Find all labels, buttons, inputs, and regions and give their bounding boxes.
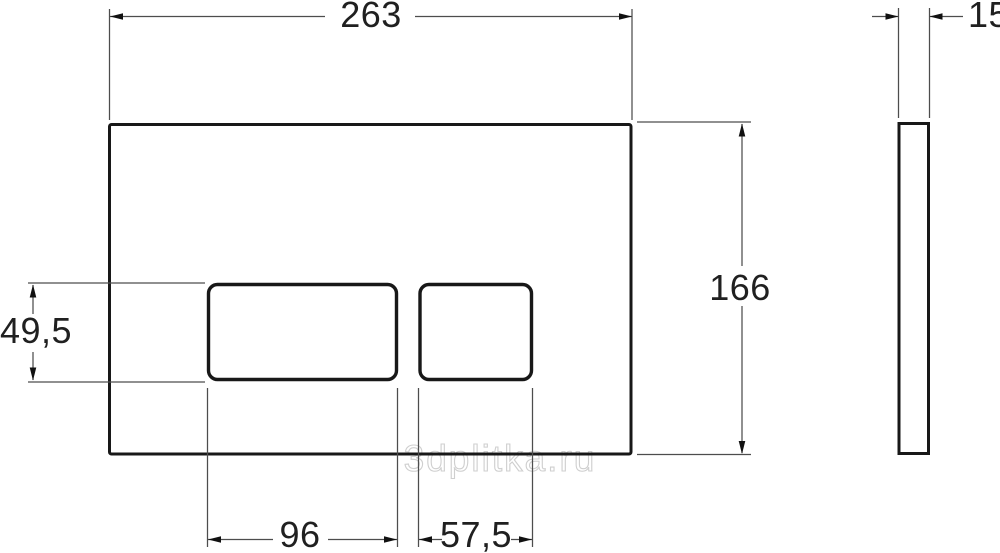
large-flush-button — [209, 285, 397, 380]
arrowhead-left — [886, 13, 899, 20]
arrowhead-left — [419, 536, 432, 543]
flush-plate-front-outline — [110, 125, 632, 455]
arrowhead-right — [519, 536, 532, 543]
technical-drawing-canvas: 3dplitka.ru 263 15 — [0, 0, 1000, 553]
front-view — [110, 125, 632, 455]
dim-side-thickness: 15 — [872, 0, 1000, 118]
dim-side-thickness-lines — [872, 8, 963, 118]
dim-front-height-label: 166 — [709, 267, 771, 308]
dim-side-thickness-label: 15 — [968, 0, 1000, 35]
small-flush-button — [420, 285, 532, 380]
dim-buttons-height-label: 49,5 — [0, 310, 72, 351]
arrowhead-right — [930, 13, 943, 20]
dim-front-width-label: 263 — [340, 0, 402, 35]
dim-large-button-width-label: 96 — [279, 514, 320, 553]
arrowhead-left — [208, 536, 221, 543]
flush-plate-side-outline — [899, 124, 929, 454]
dim-large-button-width: 96 — [208, 388, 398, 553]
arrowhead-up — [739, 124, 746, 137]
dim-buttons-height: 49,5 — [0, 283, 205, 382]
arrowhead-left — [110, 13, 123, 20]
arrowhead-right — [619, 13, 632, 20]
dim-small-button-width-label: 57,5 — [440, 514, 512, 553]
drawing-svg: 3dplitka.ru 263 15 — [0, 0, 1000, 553]
arrowhead-down — [30, 368, 37, 381]
watermark-text: 3dplitka.ru — [404, 438, 597, 479]
side-view — [899, 124, 929, 454]
dim-front-height: 166 — [637, 122, 771, 455]
arrowhead-right — [384, 536, 397, 543]
dim-front-width: 263 — [110, 0, 633, 120]
arrowhead-up — [30, 285, 37, 298]
arrowhead-down — [739, 441, 746, 454]
